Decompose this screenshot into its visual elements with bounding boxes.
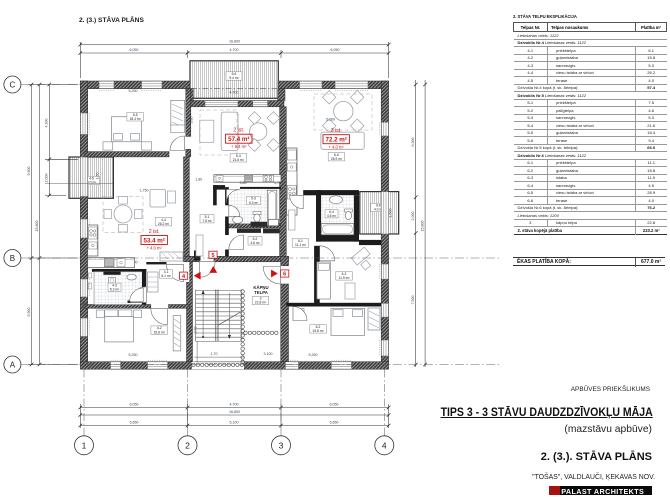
svg-text:4,700: 4,700 xyxy=(230,403,239,407)
svg-text:+ 4.0 m²: + 4.0 m² xyxy=(146,246,162,251)
svg-text:6.1 m²: 6.1 m² xyxy=(161,274,171,278)
svg-text:26.2 m²: 26.2 m² xyxy=(158,222,170,226)
svg-text:4: 4 xyxy=(382,440,387,450)
svg-text:5,260: 5,260 xyxy=(326,118,335,122)
svg-text:6,300: 6,300 xyxy=(411,138,415,147)
svg-text:1: 1 xyxy=(82,440,87,450)
svg-text:4.0 m²: 4.0 m² xyxy=(87,181,97,185)
svg-text:B: B xyxy=(10,254,15,263)
svg-text:1,80: 1,80 xyxy=(195,178,202,182)
svg-text:5,250: 5,250 xyxy=(309,353,318,357)
svg-text:1,50: 1,50 xyxy=(96,173,100,180)
svg-text:11.1 m²: 11.1 m² xyxy=(295,243,307,247)
svg-text:2,000: 2,000 xyxy=(411,212,415,221)
svg-text:A: A xyxy=(10,360,16,369)
svg-text:15,800: 15,800 xyxy=(420,221,424,232)
svg-text:5,250: 5,250 xyxy=(129,89,138,93)
svg-text:4,300: 4,300 xyxy=(45,119,49,128)
svg-text:4,700: 4,700 xyxy=(230,91,239,95)
svg-text:53.4 m²: 53.4 m² xyxy=(144,238,165,245)
svg-text:2,000: 2,000 xyxy=(45,174,49,183)
svg-text:22.8 m²: 22.8 m² xyxy=(255,301,267,305)
svg-text:16,800: 16,800 xyxy=(229,410,240,414)
svg-text:3 ist.: 3 ist. xyxy=(331,128,342,134)
svg-text:+ 4.0 m²: + 4.0 m² xyxy=(328,145,344,150)
svg-text:5,250: 5,250 xyxy=(129,353,138,357)
svg-text:15,800: 15,800 xyxy=(35,221,39,232)
svg-text:6,050: 6,050 xyxy=(130,48,139,52)
svg-text:1,80: 1,80 xyxy=(82,302,86,309)
svg-text:72.2 m²: 72.2 m² xyxy=(326,137,347,144)
svg-text:4.6 m²: 4.6 m² xyxy=(250,241,260,245)
svg-text:21.6 m²: 21.6 m² xyxy=(233,158,245,162)
svg-text:4,700: 4,700 xyxy=(230,48,239,52)
svg-text:C: C xyxy=(10,80,16,89)
svg-text:16,800: 16,800 xyxy=(229,40,240,44)
svg-text:TELPA: TELPA xyxy=(254,290,268,295)
svg-text:5,900: 5,900 xyxy=(27,308,31,317)
svg-text:28.9 m²: 28.9 m² xyxy=(331,157,343,161)
svg-text:3,100: 3,100 xyxy=(264,352,273,356)
svg-text:3,80: 3,80 xyxy=(189,117,193,124)
svg-text:18.4 m²: 18.4 m² xyxy=(130,117,142,121)
svg-text:15.8 m²: 15.8 m² xyxy=(312,329,324,333)
svg-text:+ 9.4 m²: + 9.4 m² xyxy=(231,144,247,149)
svg-text:1,75: 1,75 xyxy=(274,181,281,185)
svg-text:7,500: 7,500 xyxy=(411,296,415,305)
svg-text:57.4 m²: 57.4 m² xyxy=(228,136,249,143)
svg-text:9,500: 9,500 xyxy=(27,167,31,176)
svg-text:9.4 m²: 9.4 m² xyxy=(229,76,239,80)
svg-text:5,100: 5,100 xyxy=(230,421,239,425)
svg-text:1,70: 1,70 xyxy=(211,352,218,356)
svg-text:5,650: 5,650 xyxy=(130,421,139,425)
svg-text:5,650: 5,650 xyxy=(330,421,339,425)
svg-text:1,750: 1,750 xyxy=(140,189,149,193)
svg-text:3: 3 xyxy=(279,440,284,450)
svg-text:3,80: 3,80 xyxy=(240,181,247,185)
svg-text:2: 2 xyxy=(185,440,190,450)
svg-text:5.3 m²: 5.3 m² xyxy=(249,201,259,205)
svg-text:15.8 m²: 15.8 m² xyxy=(154,330,166,334)
svg-text:2 ist.: 2 ist. xyxy=(233,128,244,134)
svg-text:2 ist.: 2 ist. xyxy=(149,229,160,235)
svg-text:11.9 m²: 11.9 m² xyxy=(339,276,351,280)
svg-text:1,500: 1,500 xyxy=(389,209,393,218)
svg-text:7.5 m²: 7.5 m² xyxy=(202,219,212,223)
svg-text:6,050: 6,050 xyxy=(331,48,340,52)
svg-text:6: 6 xyxy=(283,272,286,278)
svg-text:4.5 m²: 4.5 m² xyxy=(327,214,337,218)
svg-text:6,050: 6,050 xyxy=(130,403,139,407)
svg-text:5.3 m²: 5.3 m² xyxy=(110,288,120,292)
svg-text:2,70: 2,70 xyxy=(194,327,198,334)
